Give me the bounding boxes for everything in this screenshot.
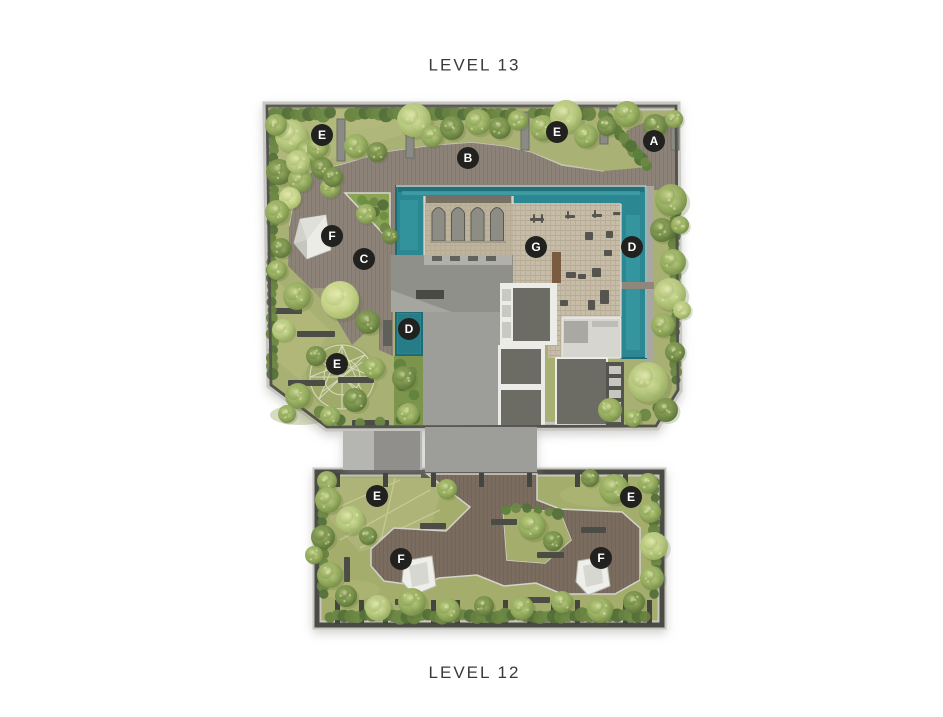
- svg-text:E: E: [373, 489, 381, 503]
- svg-text:LEVEL 13: LEVEL 13: [429, 56, 521, 75]
- svg-text:F: F: [597, 551, 604, 565]
- svg-text:G: G: [531, 240, 540, 254]
- svg-text:D: D: [628, 240, 637, 254]
- svg-text:B: B: [464, 151, 473, 165]
- svg-text:E: E: [333, 357, 341, 371]
- svg-text:F: F: [328, 229, 335, 243]
- svg-text:C: C: [360, 252, 369, 266]
- svg-text:LEVEL 12: LEVEL 12: [429, 663, 521, 682]
- svg-text:E: E: [553, 125, 561, 139]
- svg-text:F: F: [397, 552, 404, 566]
- svg-text:A: A: [650, 134, 659, 148]
- svg-text:E: E: [318, 128, 326, 142]
- svg-text:E: E: [627, 490, 635, 504]
- svg-text:D: D: [405, 322, 414, 336]
